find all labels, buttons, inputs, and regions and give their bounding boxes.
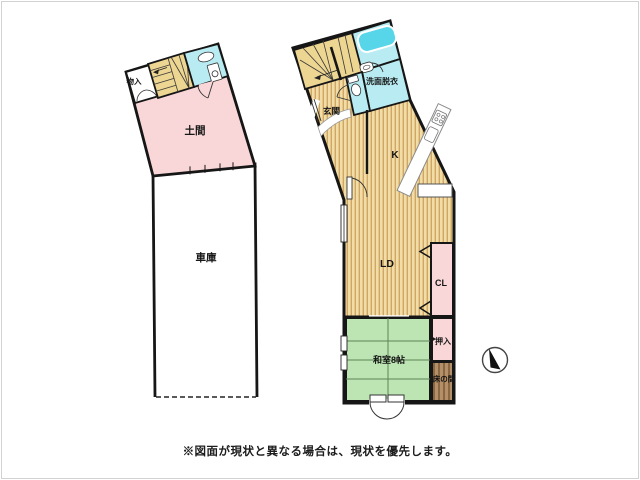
left-building: 物入 土間 車庫 — [126, 44, 257, 397]
washitsu-window-1 — [341, 336, 347, 351]
washitsu-window-2 — [341, 355, 347, 370]
kitchen-counter-lower — [418, 184, 452, 197]
ld-window — [341, 205, 347, 242]
label-washroom: 洗面脱衣 — [366, 76, 398, 86]
label-oshiire: 押入 — [435, 336, 451, 346]
label-japanese-room: 和室8帖 — [372, 354, 405, 365]
label-kitchen: K — [391, 150, 399, 161]
label-living-dining: LD — [380, 258, 394, 270]
label-storage: 物入 — [127, 76, 142, 86]
label-closet: CL — [435, 278, 447, 288]
right-building: 玄関 洗面脱衣 K LD CL 和室8帖 押入 床の間 — [293, 21, 456, 419]
compass-icon — [483, 348, 508, 373]
label-entrance: 玄関 — [323, 106, 340, 116]
label-tokonoma: 床の間 — [433, 374, 456, 384]
label-doma: 土間 — [185, 124, 206, 137]
room-garage — [153, 164, 257, 397]
floorplan-drawing: 物入 土間 車庫 — [0, 0, 640, 480]
disclaimer-note: ※図面が現状と異なる場合は、現状を優先します。 — [0, 443, 640, 459]
floorplan-page: 物入 土間 車庫 — [0, 0, 640, 480]
label-garage: 車庫 — [196, 251, 217, 264]
